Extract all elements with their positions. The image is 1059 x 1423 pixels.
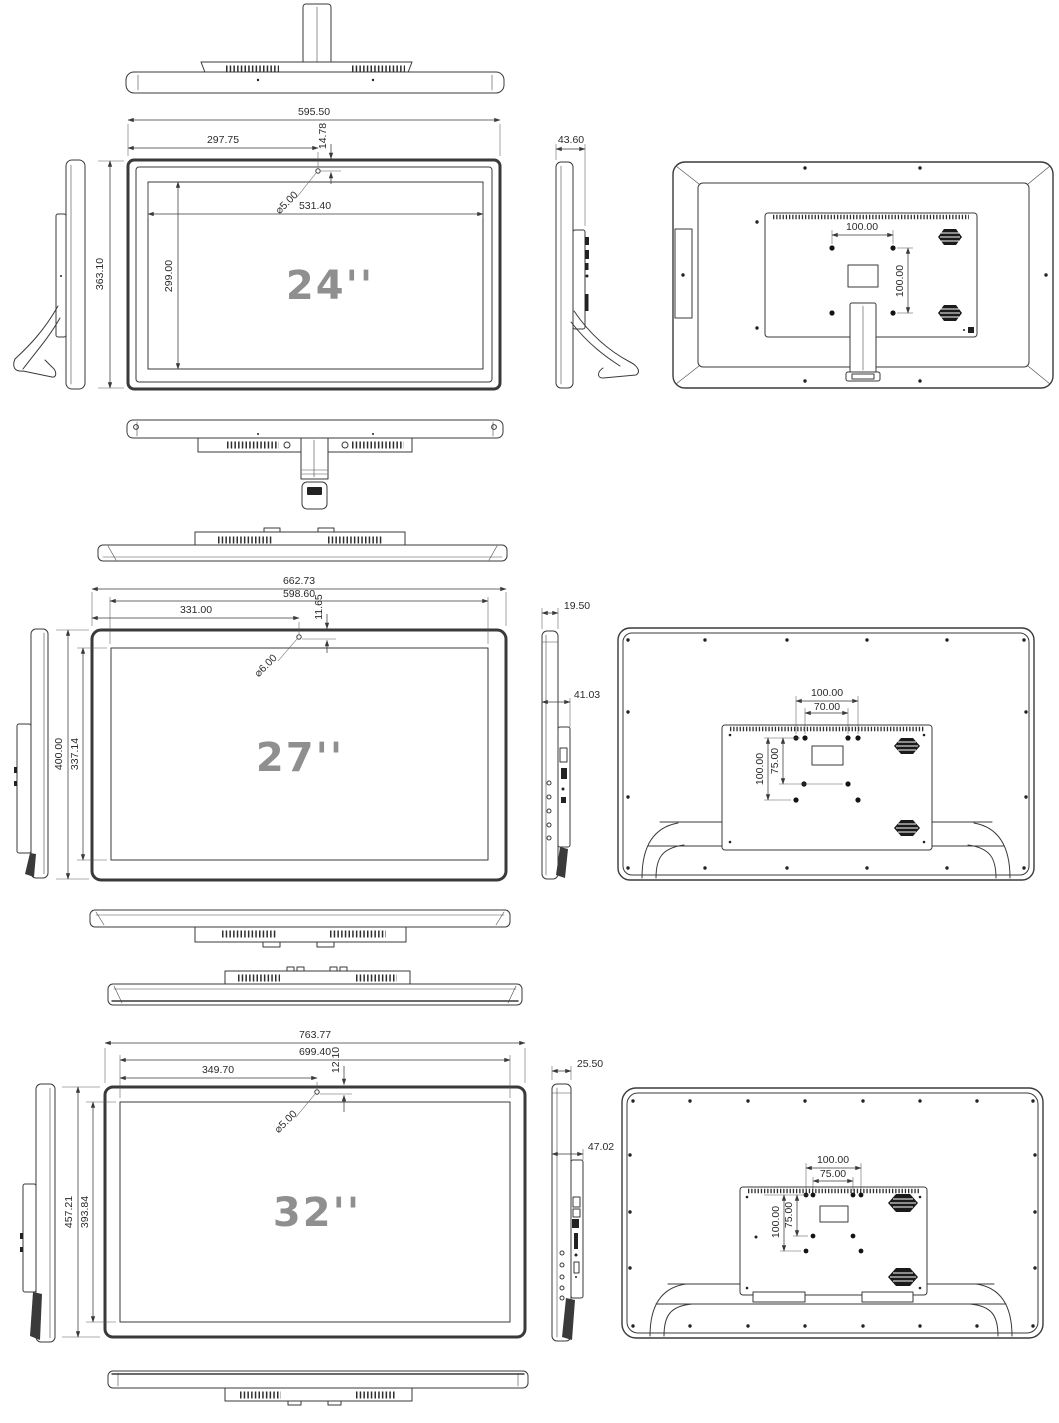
view-27-bottom [90,910,510,947]
dim-label: 699.40 [299,1046,331,1058]
dim-label: 19.50 [564,600,590,612]
rear-box [17,724,31,853]
stand-column [301,438,328,479]
view-27-side-right: 19.50 41.03 [542,600,600,879]
view-24-side-right: 43.60 [556,134,638,388]
view-32-bottom [108,1371,528,1405]
dim-label: 331.00 [180,604,212,616]
bottom-foot [30,1292,42,1340]
view-27-top [98,528,507,561]
rear-box [571,1160,583,1298]
side-ports [585,237,589,311]
dim-label: 531.40 [299,200,331,212]
dim-24-total-height: 363.10 [94,161,124,388]
view-24-top [126,4,504,93]
dim-label: 100.00 [811,687,843,699]
dim-label: 100.00 [754,753,766,785]
section-27inch: ⌀6.00 27'' 662.73 598.60 331.00 [14,528,1034,947]
dim-label: 299.00 [163,260,175,292]
dim-label: 47.02 [588,1141,614,1153]
view-27-back: 100.00 70.00 100.00 75.00 [618,628,1034,880]
dim-32-half-width: 349.70 [120,1064,317,1089]
dim-label: 12.10 [330,1047,342,1073]
dim-label: 100.00 [770,1206,782,1238]
handle-cutout [753,1292,805,1302]
monitor-dimension-drawing: ⌀5.00 24'' 595.50 297.75 14.78 [0,0,1059,1423]
dim-label: 75.00 [769,748,781,774]
dim-27-front-thickness: 19.50 [542,600,590,629]
dim-label: 70.00 [814,701,840,713]
view-24-front: ⌀5.00 24'' 595.50 297.75 14.78 [94,106,500,389]
brand-band [307,487,322,495]
view-27-side-left [14,629,48,878]
size-label-32: 32'' [273,1190,361,1236]
view-27-front: ⌀6.00 27'' 662.73 598.60 331.00 [53,575,506,880]
dim-label: 337.14 [69,738,81,770]
view-24-side-left [14,160,85,389]
size-label-24: 24'' [286,263,374,309]
view-32-top [108,967,522,1005]
dim-label: 595.50 [298,106,330,118]
section-24inch: ⌀5.00 24'' 595.50 297.75 14.78 [14,4,1053,509]
dim-label: 598.60 [283,588,315,600]
dim-label: 297.75 [207,134,239,146]
view-24-bottom [127,420,503,509]
view-24-back: 100.00 100.00 [673,162,1053,388]
dim-label: 363.10 [94,258,106,290]
rear-box [23,1184,36,1292]
rear-box [558,727,570,847]
technical-drawing-page: ⌀5.00 24'' 595.50 297.75 14.78 [0,0,1059,1423]
dim-label: 41.03 [574,689,600,701]
dim-label: 100.00 [894,265,906,297]
dim-label: 25.50 [577,1058,603,1070]
view-32-front: ⌀5.00 32'' 763.77 699.40 349.70 [62,1029,525,1337]
dim-label: 393.84 [79,1196,91,1228]
dim-label: 763.77 [299,1029,331,1041]
stand-base [846,372,880,381]
dim-label: 457.21 [63,1196,75,1228]
dim-label: 75.00 [820,1168,846,1180]
dim-label: 100.00 [846,221,878,233]
view-32-side-left [20,1084,55,1342]
dim-label: 14.78 [317,123,329,149]
dim-label: 75.00 [783,1202,795,1228]
dim-label: 43.60 [558,134,584,146]
section-32inch: ⌀5.00 32'' 763.77 699.40 349.70 [20,967,1043,1405]
stand-base-cap [302,482,327,509]
view-32-side-right: 25.50 47.02 [552,1058,614,1341]
dim-label: 100.00 [817,1154,849,1166]
handle-cutout [862,1292,913,1302]
dim-label: 400.00 [53,738,65,770]
view-32-back: 100.00 75.00 100.00 75.00 [622,1088,1043,1338]
size-label-27: 27'' [256,735,344,781]
dim-32-front-thickness: 25.50 [552,1058,603,1080]
dim-label: 662.73 [283,575,315,587]
dim-label: 11.65 [313,594,325,620]
dim-24-total-width: 595.50 [128,106,500,156]
dim-label: 349.70 [202,1064,234,1076]
